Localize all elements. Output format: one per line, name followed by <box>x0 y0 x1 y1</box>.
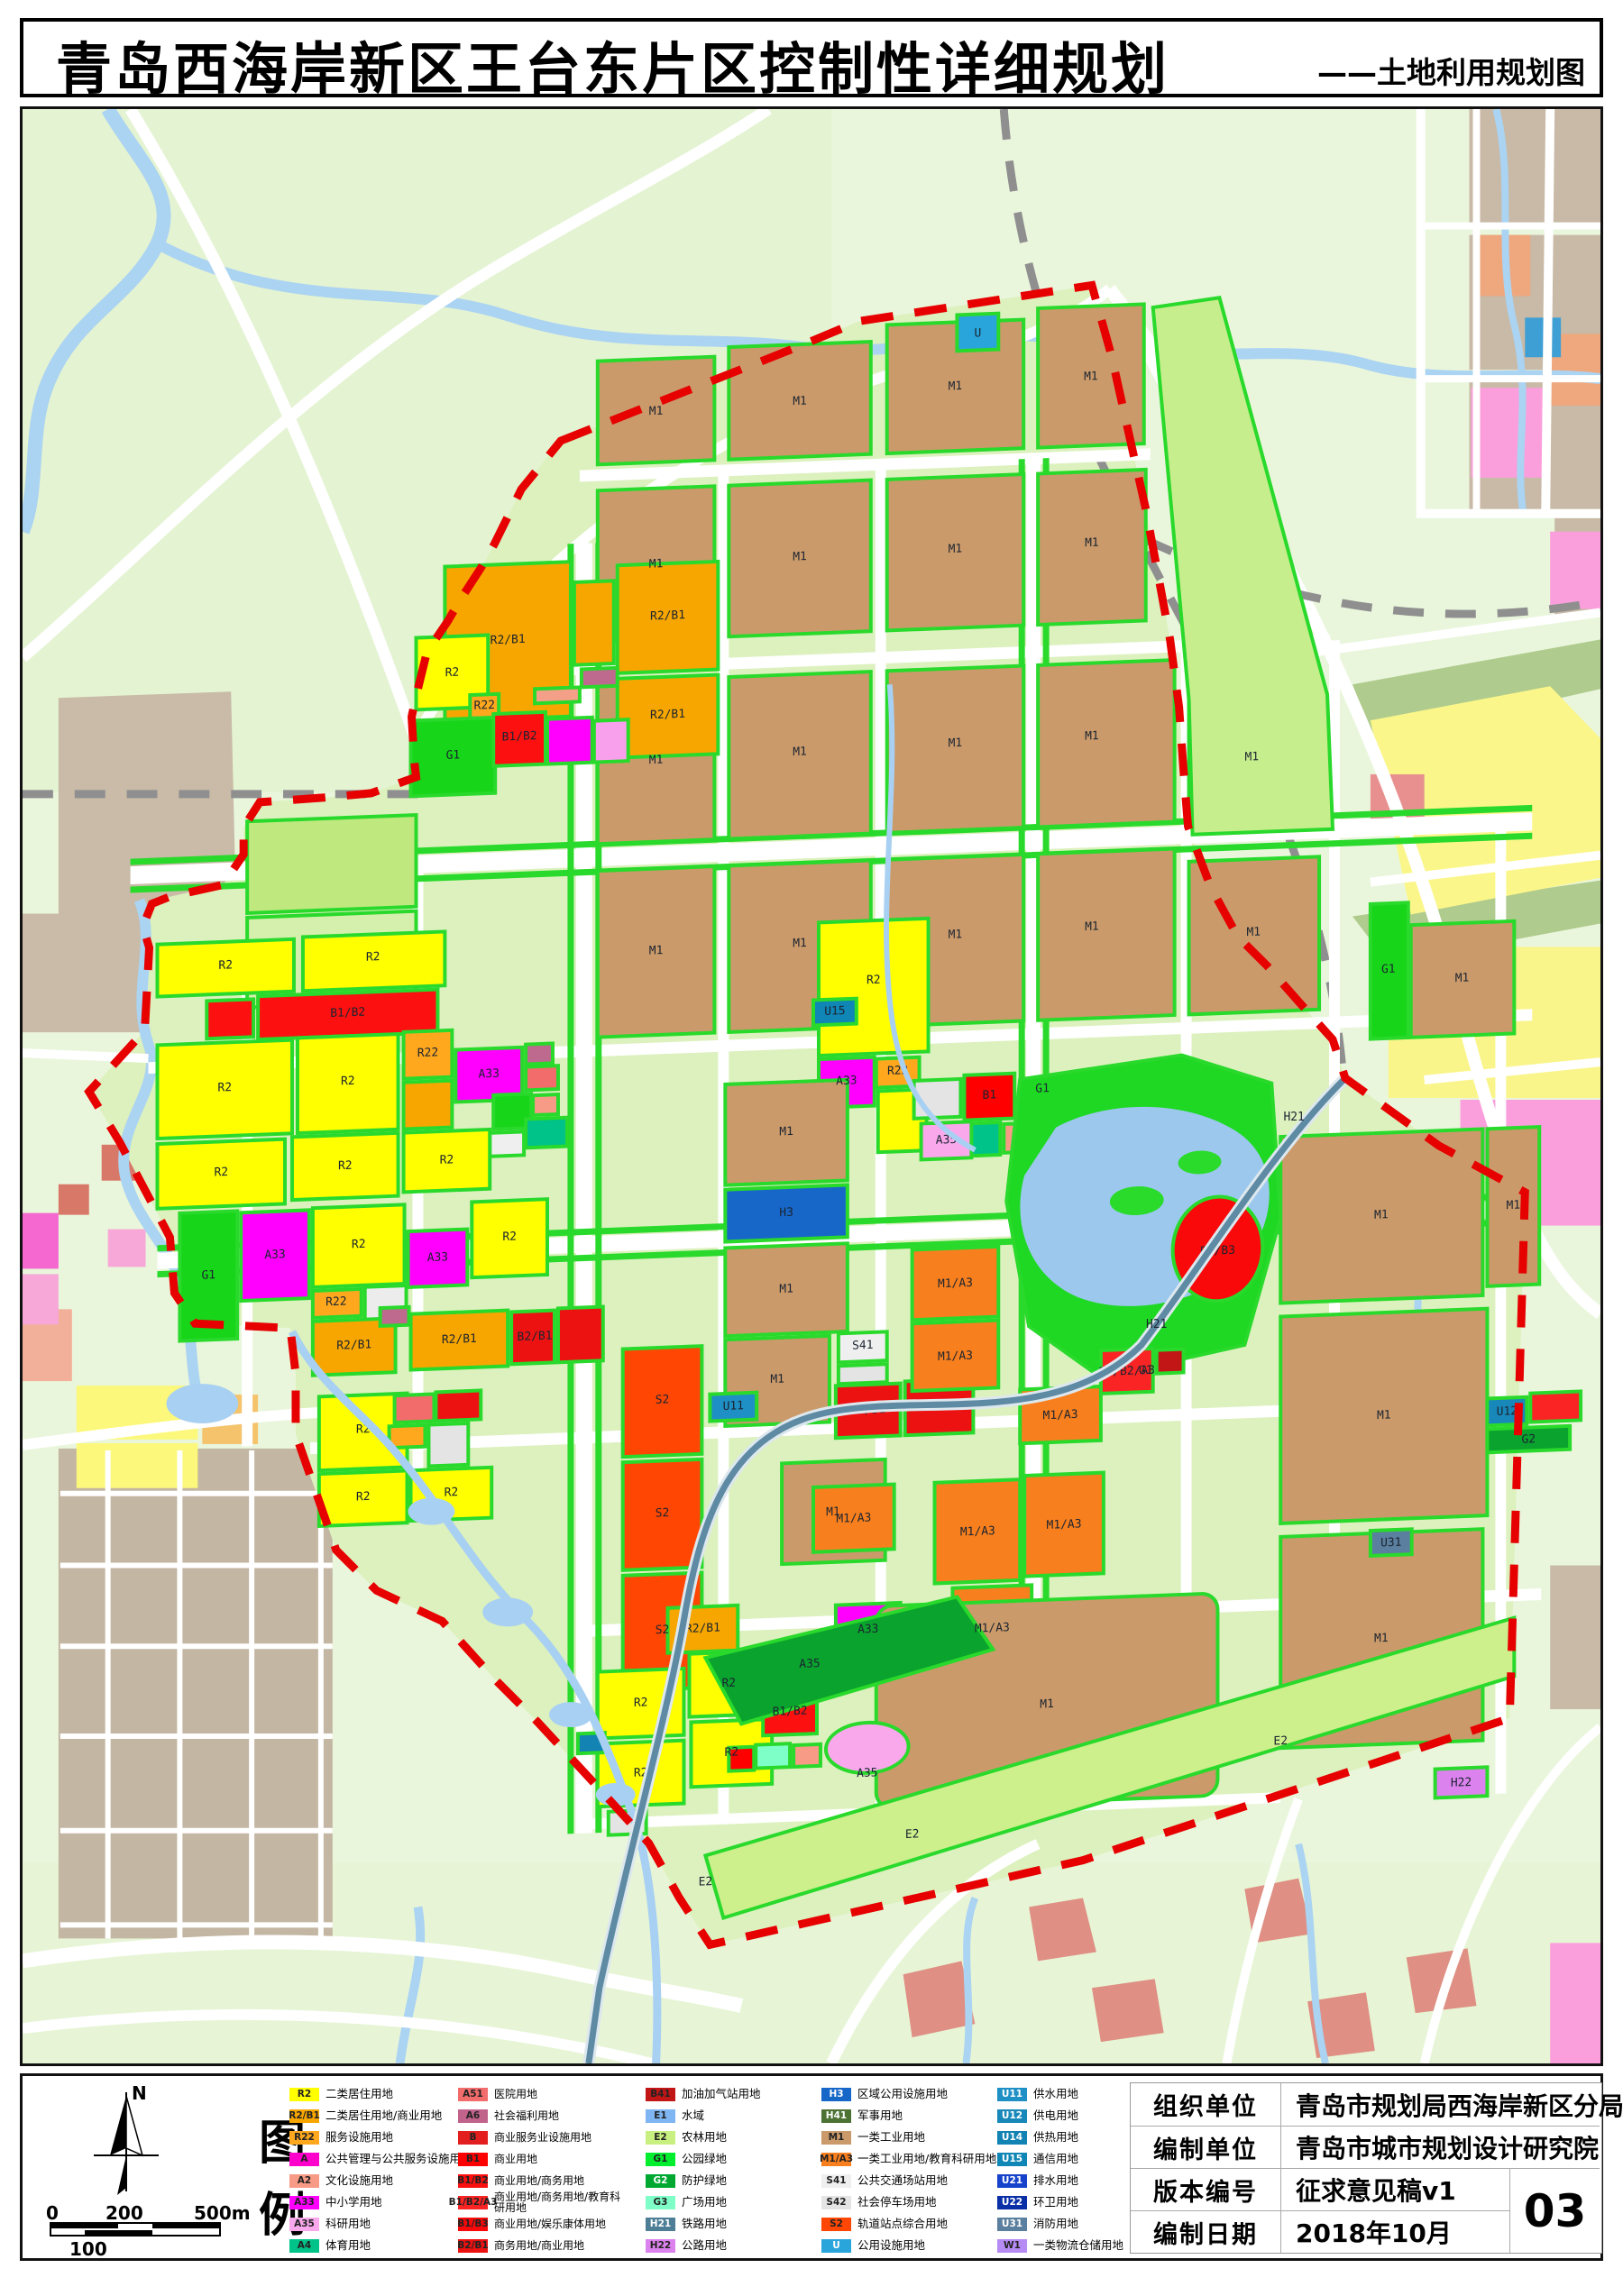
map-parcel <box>404 1081 453 1130</box>
legend-swatch-B1: B1 <box>458 2153 488 2166</box>
legend-item-R2-B1: R2/B1二类居住用地/商业用地 <box>289 2105 472 2127</box>
map-label: M1 <box>793 746 807 760</box>
map-label: R2 <box>867 974 881 988</box>
legend-label: 公用设施用地 <box>857 2240 925 2252</box>
north-label: N <box>132 2082 147 2104</box>
legend-swatch-S2: S2 <box>821 2218 851 2231</box>
map-label: M1 <box>1245 750 1260 764</box>
map-label: R2/B1 <box>336 1338 371 1352</box>
legend-label: 商业用地/商务用地 <box>494 2175 584 2186</box>
map-label: A33 <box>857 1623 878 1637</box>
legend-swatch-E2: E2 <box>646 2131 675 2145</box>
legend-item-A33: A33中小学用地 <box>289 2191 472 2213</box>
legend-swatch-H3: H3 <box>821 2088 851 2101</box>
map-parcel <box>526 1043 553 1064</box>
legend-swatch-H22: H22 <box>646 2239 675 2253</box>
legend-label: 供水用地 <box>1033 2089 1078 2100</box>
map-label: M1 <box>649 557 664 572</box>
map-label: G1 <box>446 748 461 763</box>
map-shape <box>23 1053 149 1058</box>
map-label: G1 <box>1381 963 1396 977</box>
map-parcel <box>793 1744 821 1767</box>
info-label-version: 版本编号 <box>1131 2168 1280 2210</box>
legend-item-U31: U31消防用地 <box>997 2213 1123 2235</box>
legend-label: 公园绿地 <box>682 2154 727 2165</box>
legend-item-M1-A3: M1/A3一类工业用地/教育科研用地 <box>821 2148 996 2170</box>
legend-swatch-A51: A51 <box>458 2088 488 2101</box>
map-label: M1 <box>1374 1208 1389 1222</box>
map-label: M1 <box>1085 919 1099 934</box>
map-label: R2 <box>445 1486 459 1500</box>
map-parcel <box>390 1425 426 1448</box>
map-parcel <box>1038 849 1174 1020</box>
legend-item-U22: U22环卫用地 <box>997 2191 1123 2213</box>
map-label: M1 <box>793 937 807 951</box>
map-label: M1 <box>1507 1199 1521 1213</box>
map-label: U12 <box>1497 1404 1518 1419</box>
map-label: M1 <box>1085 729 1099 744</box>
legend-label: 水域 <box>682 2110 704 2122</box>
map-label: R2 <box>341 1075 355 1089</box>
legend-item-H3: H3区域公用设施用地 <box>821 2083 996 2105</box>
map-label: B1/B2 <box>502 729 537 744</box>
info-value-date: 2018年10月 <box>1280 2210 1509 2253</box>
legend-label: 供电用地 <box>1033 2110 1078 2122</box>
legend-item-R22: R22服务设施用地 <box>289 2127 472 2148</box>
legend-swatch-A6: A6 <box>458 2109 488 2123</box>
map-label: R2 <box>722 1677 737 1691</box>
map-label: R2 <box>725 1745 739 1760</box>
map-parcel <box>247 815 416 913</box>
map-label: R2/B1 <box>650 708 685 722</box>
legend-label: 商业用地/商务用地/教育科研用地 <box>494 2191 631 2213</box>
legend-swatch-U12: U12 <box>997 2109 1027 2123</box>
legend-swatch-G2: G2 <box>646 2174 675 2188</box>
map-label: M1/A3 <box>938 1349 973 1364</box>
legend-label: 防护绿地 <box>682 2175 727 2187</box>
map-parcel <box>1550 532 1600 609</box>
map-label: U11 <box>723 1399 744 1413</box>
map-label: S41 <box>852 1339 873 1353</box>
map-label: M1/A3 <box>975 1621 1010 1635</box>
legend-swatch-B1-B2-A3: B1/B2/A3 <box>458 2196 488 2209</box>
legend-item-U11: U11供水用地 <box>997 2083 1123 2105</box>
map-label: A33 <box>836 1074 857 1088</box>
map-label: R2/B1 <box>491 633 526 647</box>
legend-item-G2: G2防护绿地 <box>646 2170 761 2191</box>
legend-swatch-U21: U21 <box>997 2174 1027 2188</box>
map-label: E2 <box>699 1875 713 1889</box>
map-label: R2 <box>445 666 460 681</box>
legend-swatch-U11: U11 <box>997 2088 1027 2101</box>
map-parcel <box>1092 1979 1164 2042</box>
map-label: R22 <box>417 1046 438 1060</box>
legend-label: 商务用地/商业用地 <box>494 2240 584 2251</box>
legend-swatch-B2-B1: B2/B1 <box>458 2239 488 2253</box>
info-label-date: 编制日期 <box>1131 2210 1280 2253</box>
legend-item-R2: R2二类居住用地 <box>289 2083 472 2105</box>
map-label: R2/B1 <box>685 1622 720 1636</box>
legend-swatch-B1-B3: B1/B3 <box>458 2218 488 2231</box>
map-label: M1 <box>649 944 664 958</box>
map-parcel <box>408 1498 455 1525</box>
map-label: M1/A3 <box>938 1276 973 1291</box>
legend-item-A: A公共管理与公共服务设施用地 <box>289 2148 472 2170</box>
map-label: M1/A3 <box>1047 1517 1082 1532</box>
map-label: R22 <box>474 699 495 713</box>
legend-label: 军事用地 <box>857 2110 903 2122</box>
map-parcel <box>59 1449 333 1938</box>
legend-item-H22: H22公路用地 <box>646 2235 761 2256</box>
legend-swatch-U: U <box>821 2239 851 2253</box>
map-label: R2 <box>217 1081 232 1095</box>
legend-item-B: B商业服务业设施用地 <box>458 2127 631 2148</box>
legend-label: 中小学用地 <box>326 2197 382 2209</box>
map-label: B1/B2 <box>330 1006 365 1020</box>
map-parcel <box>558 1307 603 1363</box>
legend-item-A2: A2文化设施用地 <box>289 2170 472 2191</box>
legend-item-S42: S42社会停车场用地 <box>821 2191 996 2213</box>
legend-label: 农林用地 <box>682 2132 727 2144</box>
map-label: U31 <box>1380 1536 1401 1550</box>
scale-bar-graphic <box>50 2222 221 2237</box>
map-parcel <box>582 668 618 687</box>
map-frame: M1M1M1M1M1M1M1M1UM1M1M1M1M1M1M1M1M1M1R2/… <box>20 106 1603 2066</box>
legend-label: 加油加气站用地 <box>682 2089 761 2100</box>
map-label: U <box>974 326 981 340</box>
map-parcel <box>166 1384 238 1423</box>
map-parcel <box>533 1094 558 1115</box>
legend-label: 社会福利用地 <box>494 2110 559 2121</box>
legend-swatch-W1: W1 <box>997 2239 1027 2253</box>
map-parcel <box>1525 317 1561 357</box>
map-label: H22 <box>1451 1776 1472 1790</box>
map-label: M1 <box>1377 1409 1391 1423</box>
legend-column-4: H3区域公用设施用地H41军事用地M1一类工业用地M1/A3一类工业用地/教育科… <box>821 2083 996 2256</box>
legend-label: 商业用地/娱乐康体用地 <box>494 2218 606 2229</box>
map-parcel <box>549 1702 592 1727</box>
page-number: 03 <box>1509 2168 1600 2253</box>
legend-column-2: A51医院用地A6社会福利用地B商业服务业设施用地B1商业用地B1/B2商业用地… <box>458 2083 631 2256</box>
map-parcel <box>526 1118 567 1148</box>
map-label: A33 <box>264 1248 285 1262</box>
legend-item-S41: S41公共交通场站用地 <box>821 2170 996 2191</box>
legend-label: 服务设施用地 <box>326 2132 393 2144</box>
legend-panel: N 0 200 500m 100 图 例 R2二类居住用地R2/B1二类居住用地… <box>20 2073 1603 2261</box>
map-parcel <box>206 999 253 1038</box>
legend-item-A4: A4体育用地 <box>289 2235 472 2256</box>
legend-label: 一类工业用地 <box>857 2132 925 2144</box>
legend-swatch-R22: R22 <box>289 2131 319 2145</box>
map-label: R2 <box>338 1159 353 1174</box>
map-parcel <box>395 1394 435 1422</box>
map-label: H21 <box>1146 1318 1167 1331</box>
page-title: 青岛西海岸新区王台东片区控制性详细规划 <box>56 23 1169 105</box>
map-label: B1/B2 <box>773 1705 808 1719</box>
legend-label: 公共交通场站用地 <box>857 2175 948 2187</box>
map-label: M1/A3 <box>1043 1408 1078 1422</box>
legend-swatch-G1: G1 <box>646 2153 675 2166</box>
map-label: M1 <box>949 928 963 942</box>
legend-item-B1-B2: B1/B2商业用地/商务用地 <box>458 2170 631 2191</box>
legend-item-U14: U14供热用地 <box>997 2127 1123 2148</box>
map-shape <box>1545 109 1550 514</box>
scale-tick-0: 0 <box>46 2202 59 2224</box>
map-label: M1 <box>949 380 963 394</box>
map-parcel <box>1469 109 1600 226</box>
legend-swatch-U14: U14 <box>997 2131 1027 2145</box>
legend-label: 科研用地 <box>326 2218 371 2230</box>
map-label: M1 <box>770 1373 784 1387</box>
map-label: G1 <box>1035 1082 1050 1096</box>
map-label: M1/A3 <box>836 1511 871 1525</box>
legend-label: 文化设施用地 <box>326 2175 393 2187</box>
map-label: R2/B1 <box>442 1332 477 1347</box>
map-parcel <box>594 719 628 762</box>
legend-item-B2-B1: B2/B1商务用地/商业用地 <box>458 2235 631 2256</box>
legend-swatch-S41: S41 <box>821 2174 851 2188</box>
map-parcel <box>1038 660 1174 827</box>
legend-item-S2: S2轨道站点综合用地 <box>821 2213 996 2235</box>
map-label: A33 <box>427 1250 448 1265</box>
legend-label: 公共管理与公共服务设施用地 <box>326 2154 472 2165</box>
legend-column-1: R2二类居住用地R2/B1二类居住用地/商业用地R22服务设施用地A公共管理与公… <box>289 2083 472 2256</box>
legend-item-B1-B2-A3: B1/B2/A3商业用地/商务用地/教育科研用地 <box>458 2191 631 2213</box>
legend-item-B1: B1商业用地 <box>458 2148 631 2170</box>
legend-swatch-B41: B41 <box>646 2088 675 2101</box>
map-label: M1 <box>1455 972 1470 986</box>
north-arrow: N <box>72 2081 180 2199</box>
info-value-compiler: 青岛市城市规划设计研究院 <box>1280 2126 1600 2168</box>
legend-swatch-E1: E1 <box>646 2109 675 2123</box>
map-label: M1 <box>649 405 664 419</box>
scale-tick-200: 200 <box>105 2202 143 2224</box>
legend-label: 一类工业用地/教育科研用地 <box>857 2154 996 2165</box>
legend-swatch-S42: S42 <box>821 2196 851 2209</box>
map-parcel <box>547 718 592 764</box>
map-label: R22 <box>326 1294 346 1309</box>
map-parcel <box>839 1364 887 1384</box>
map-label: M1 <box>1374 1632 1389 1646</box>
map-parcel <box>756 1743 790 1768</box>
map-parcel <box>1471 388 1543 478</box>
map-parcel <box>381 1307 409 1326</box>
title-bar: 青岛西海岸新区王台东片区控制性详细规划 ——土地利用规划图 <box>20 18 1603 97</box>
map-label: M1 <box>793 550 807 564</box>
legend-swatch-R2: R2 <box>289 2088 319 2101</box>
legend-item-A6: A6社会福利用地 <box>458 2105 631 2127</box>
map-label: A35 <box>799 1657 820 1671</box>
map-label: A35 <box>857 1766 877 1780</box>
legend-item-U: U公用设施用地 <box>821 2235 996 2256</box>
legend-label: 消防用地 <box>1033 2218 1078 2230</box>
map-label: M1 <box>1040 1697 1054 1712</box>
map-label: R2 <box>352 1238 366 1252</box>
legend-label: 广场用地 <box>682 2197 727 2209</box>
legend-swatch-A: A <box>289 2153 319 2166</box>
map-parcel <box>23 1274 59 1324</box>
map-label: R2 <box>634 1696 648 1710</box>
map-label: R2 <box>366 950 381 965</box>
map-label: B1 <box>983 1088 997 1102</box>
map-label: R2 <box>502 1230 517 1244</box>
scale-sub-label: 100 <box>69 2238 257 2260</box>
map-label: R2 <box>218 958 233 973</box>
legend-item-B1-B3: B1/B3商业用地/娱乐康体用地 <box>458 2213 631 2235</box>
map-label: M1 <box>949 542 963 556</box>
scale-tick-500: 500m <box>194 2202 251 2224</box>
legend-swatch-A2: A2 <box>289 2174 319 2188</box>
map-parcel <box>490 1131 524 1156</box>
info-table: 组织单位 青岛市规划局西海岸新区分局 编制单位 青岛市城市规划设计研究院 版本编… <box>1130 2082 1602 2254</box>
map-parcel <box>482 1597 533 1626</box>
legend-item-B41: B41加油加气站用地 <box>646 2083 761 2105</box>
legend-swatch-H41: H41 <box>821 2109 851 2123</box>
legend-swatch-G3: G3 <box>646 2196 675 2209</box>
legend-swatch-U31: U31 <box>997 2218 1027 2231</box>
legend-swatch-H21: H21 <box>646 2218 675 2231</box>
map-parcel <box>1550 1566 1600 1710</box>
legend-label: 体育用地 <box>326 2240 371 2252</box>
map-parcel <box>23 1213 59 1269</box>
info-label-compiler: 编制单位 <box>1131 2126 1280 2168</box>
map-label: A33 <box>479 1067 500 1082</box>
legend-item-A35: A35科研用地 <box>289 2213 472 2235</box>
legend-item-U21: U21排水用地 <box>997 2170 1123 2191</box>
map-label: E2 <box>905 1827 920 1842</box>
legend-label: 铁路用地 <box>682 2218 727 2230</box>
legend-swatch-M1-A3: M1/A3 <box>821 2153 851 2166</box>
legend-item-W1: W1一类物流仓储用地 <box>997 2235 1123 2256</box>
legend-item-E1: E1水域 <box>646 2105 761 2127</box>
legend-item-H41: H41军事用地 <box>821 2105 996 2127</box>
map-parcel <box>1157 1349 1184 1374</box>
map-label: R2 <box>356 1490 371 1505</box>
legend-label: 环卫用地 <box>1033 2197 1078 2209</box>
legend-label: 二类居住用地/商业用地 <box>326 2110 442 2122</box>
legend-label: 二类居住用地 <box>326 2089 393 2100</box>
scale-bar: 0 200 500m 100 <box>50 2202 257 2260</box>
planning-map-page: 青岛西海岸新区王台东片区控制性详细规划 ——土地利用规划图 <box>0 0 1623 2296</box>
legend-swatch-A4: A4 <box>289 2239 319 2253</box>
legend-swatch-B: B <box>458 2131 488 2145</box>
legend-column-5: U11供水用地U12供电用地U14供热用地U15通信用地U21排水用地U22环卫… <box>997 2083 1123 2256</box>
map-parcel <box>1530 1391 1581 1422</box>
legend-label: 轨道站点综合用地 <box>857 2218 948 2230</box>
map-label: R2 <box>440 1153 454 1167</box>
legend-label: 公路用地 <box>682 2240 727 2252</box>
map-parcel <box>574 581 614 664</box>
info-value-org: 青岛市规划局西海岸新区分局 <box>1280 2083 1600 2126</box>
legend-item-H21: H21铁路用地 <box>646 2213 761 2235</box>
map-label: M1 <box>1084 370 1098 384</box>
legend-item-E2: E2农林用地 <box>646 2127 761 2148</box>
legend-swatch-R2-B1: R2/B1 <box>289 2109 319 2123</box>
legend-column-3: B41加油加气站用地E1水域E2农林用地G1公园绿地G2防护绿地G3广场用地H2… <box>646 2083 761 2256</box>
map-label: M1 <box>949 736 963 751</box>
map-label: M1 <box>779 1282 793 1296</box>
map-label: M1 <box>1247 926 1261 940</box>
map-label: M1 <box>1085 536 1099 551</box>
map-label: M1 <box>649 754 664 768</box>
map-label: S2 <box>656 1624 670 1638</box>
map-parcel <box>436 1390 481 1421</box>
map-label: M1 <box>779 1125 793 1139</box>
legend-label: 一类物流仓储用地 <box>1033 2240 1123 2252</box>
legend-swatch-U22: U22 <box>997 2196 1027 2209</box>
legend-label: 商业用地 <box>494 2154 537 2164</box>
map-parcel <box>526 1066 558 1090</box>
map-label: M1/A3 <box>960 1524 995 1539</box>
legend-label: 通信用地 <box>1033 2154 1078 2165</box>
legend-swatch-A33: A33 <box>289 2196 319 2209</box>
map-parcel <box>108 1230 146 1267</box>
page-subtitle: ——土地利用规划图 <box>1317 49 1585 92</box>
map-label: E2 <box>1273 1734 1288 1749</box>
map-label: R2/B1 <box>650 608 685 623</box>
legend-swatch-U15: U15 <box>997 2153 1027 2166</box>
map-label: G2 <box>1521 1432 1536 1447</box>
legend-label: 供热用地 <box>1033 2132 1078 2144</box>
legend-item-U12: U12供电用地 <box>997 2105 1123 2127</box>
map-label: S2 <box>656 1506 670 1521</box>
legend-label: 医院用地 <box>494 2089 537 2099</box>
map-label: G1 <box>201 1268 215 1283</box>
map-parcel <box>59 1185 89 1215</box>
legend-item-A51: A51医院用地 <box>458 2083 631 2105</box>
legend-swatch-B1-B2: B1/B2 <box>458 2174 488 2188</box>
info-value-version: 征求意见稿v1 <box>1280 2168 1509 2210</box>
legend-label: 社会停车场用地 <box>857 2197 937 2209</box>
legend-label: 商业服务业设施用地 <box>494 2132 591 2143</box>
map-label: H21 <box>1283 1111 1304 1124</box>
map-parcel <box>428 1423 468 1467</box>
legend-label: 排水用地 <box>1033 2175 1078 2187</box>
legend-item-U15: U15通信用地 <box>997 2148 1123 2170</box>
legend-item-M1: M1一类工业用地 <box>821 2127 996 2148</box>
map-label: H3 <box>779 1206 793 1221</box>
map-label: R2 <box>214 1166 228 1180</box>
legend-swatch-M1: M1 <box>821 2131 851 2145</box>
legend-swatch-A35: A35 <box>289 2218 319 2231</box>
map-label: B2/B1 <box>518 1330 553 1344</box>
legend-item-G1: G1公园绿地 <box>646 2148 761 2170</box>
map-label: S2 <box>656 1393 670 1407</box>
legend-label: 区域公用设施用地 <box>857 2089 948 2100</box>
map-label: U15 <box>824 1004 845 1019</box>
map-parcel <box>1550 1943 1600 2063</box>
map-label: M1 <box>793 395 807 409</box>
land-use-map: M1M1M1M1M1M1M1M1UM1M1M1M1M1M1M1M1M1M1R2/… <box>23 109 1600 2063</box>
legend-item-G3: G3广场用地 <box>646 2191 761 2213</box>
info-label-org: 组织单位 <box>1131 2083 1280 2126</box>
map-parcel <box>535 687 580 703</box>
